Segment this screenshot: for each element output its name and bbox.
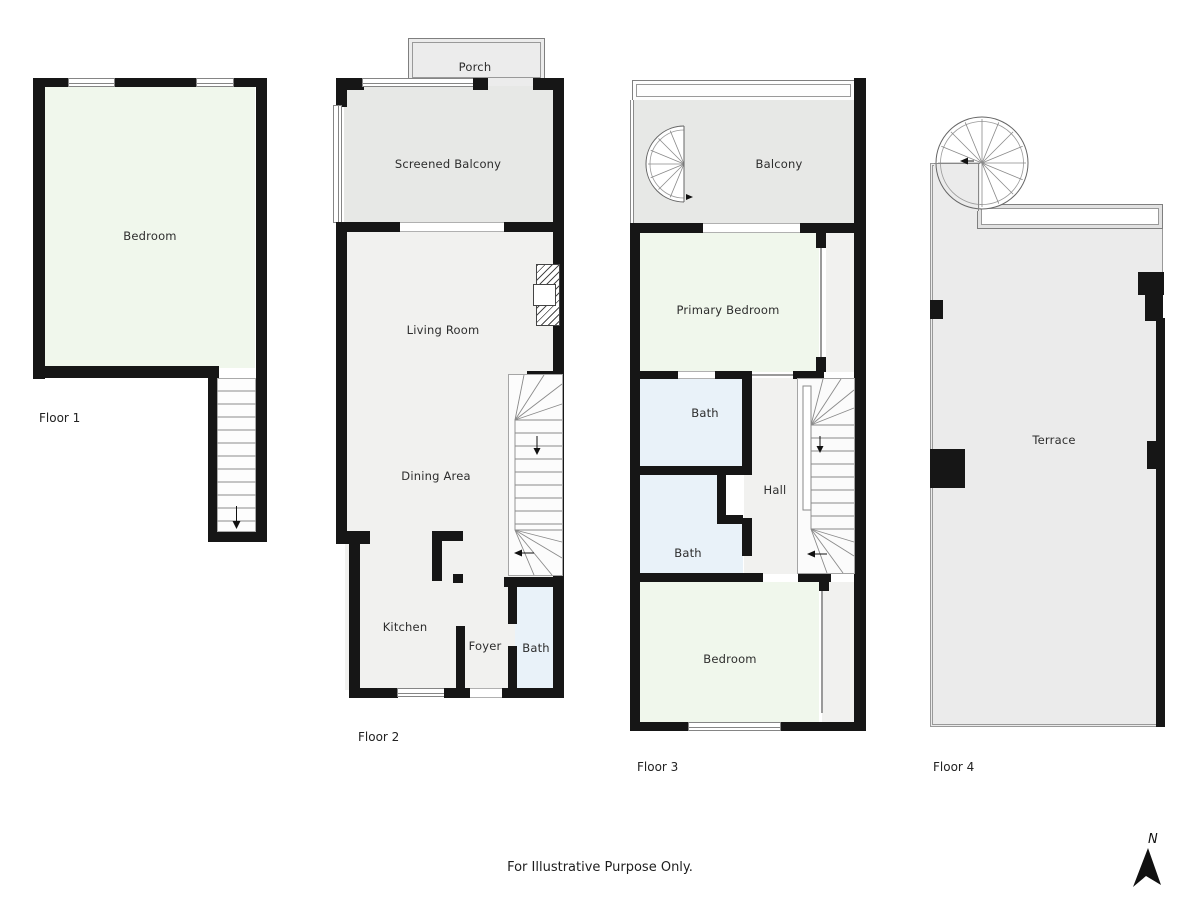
floor4-caption: Floor 4 [933,760,974,774]
wall-segment [930,300,943,319]
wall-segment [1156,318,1165,727]
disclaimer-text: For Illustrative Purpose Only. [0,860,1200,875]
floor4-terrace-label: Terrace [1032,433,1075,447]
wall-segment [930,449,965,488]
wall-segment [1145,294,1163,321]
floor4-spiral-stair [934,115,1030,211]
floor-plan-sheet: Bedroom Floor 1 [0,0,1200,900]
north-label: N [1148,832,1158,847]
floor4-plan: Terrace Floor 4 [0,0,1200,790]
wall-segment [1138,272,1164,295]
